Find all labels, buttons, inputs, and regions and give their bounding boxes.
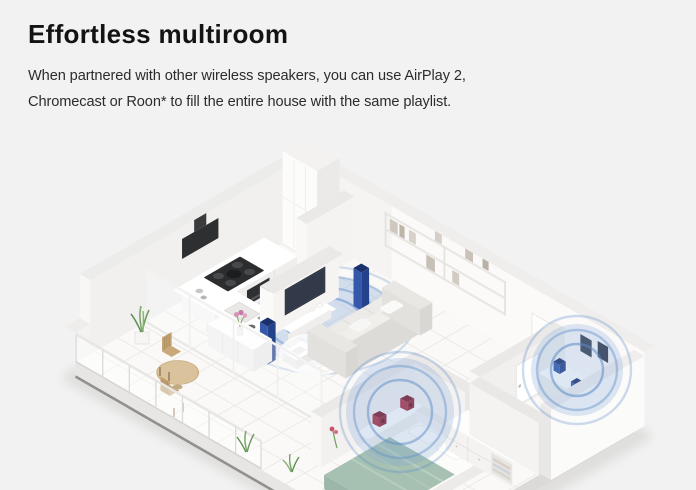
description-line-2: Chromecast or Roon* to fill the entire h… [28,89,466,115]
bedroom-sound-wave [340,352,460,472]
section-title: Effortless multiroom [28,20,466,50]
description-line-1: When partnered with other wireless speak… [28,63,466,89]
section-description: When partnered with other wireless speak… [28,63,466,115]
intro-section: Effortless multiroom When partnered with… [28,20,466,115]
study-sound-wave [523,316,631,424]
